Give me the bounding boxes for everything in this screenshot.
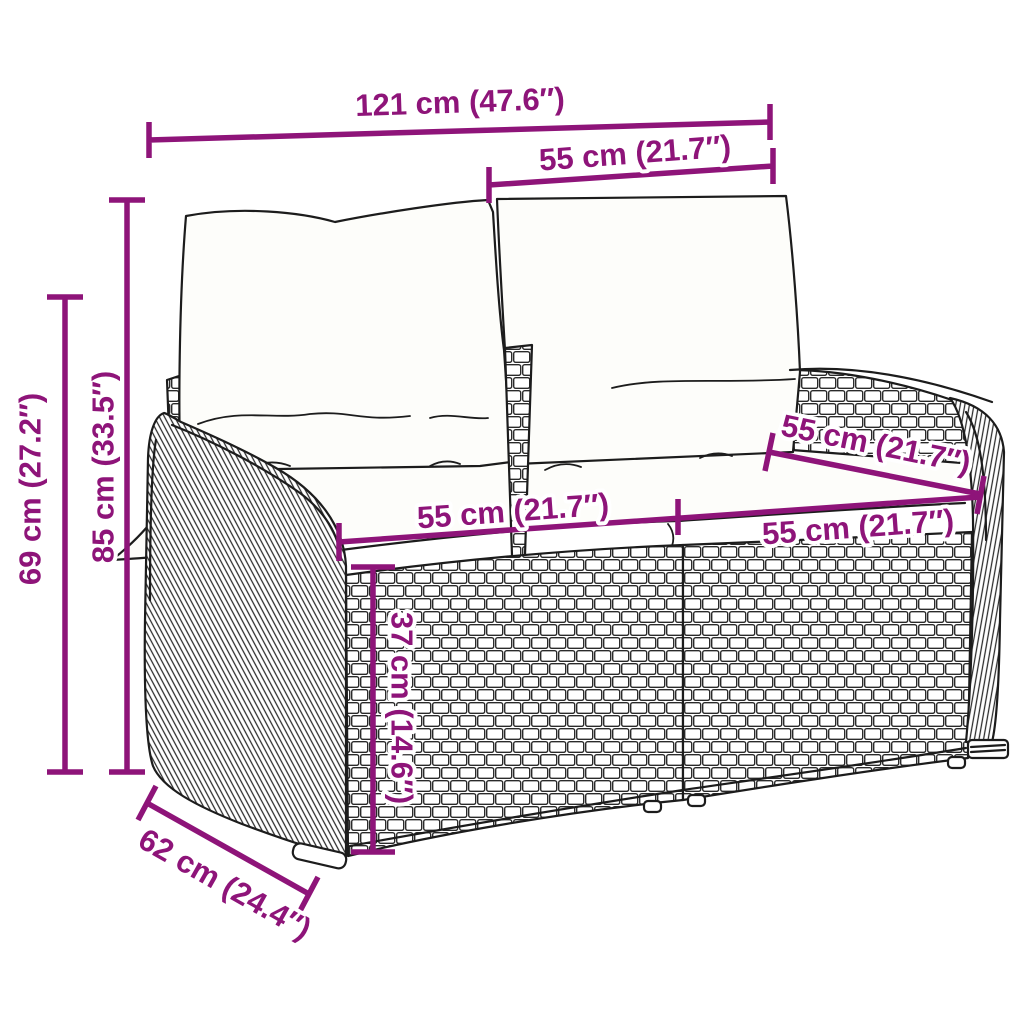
dim-total-height-label: 85 cm (33.5″) (86, 371, 121, 563)
dim-total-height: 85 cm (33.5″) (86, 200, 146, 772)
dim-side-height: 69 cm (27.2″) (13, 297, 84, 772)
dim-side-height-line (47, 297, 83, 772)
dim-section-width: 55 cm (21.7″) (489, 128, 773, 203)
back-cushion-right (497, 196, 800, 464)
front-panel-right (683, 532, 972, 800)
back-cushion-left (179, 200, 511, 470)
dim-side-height-label: 69 cm (27.2″) (13, 393, 48, 585)
dim-seat-height-label: 37 cm (14.6″) (385, 612, 420, 804)
dim-overall-width-label: 121 cm (47.6″) (355, 81, 566, 123)
furniture-dimension-diagram: 121 cm (47.6″) 55 cm (21.7″) 85 cm (33.5… (0, 0, 1024, 1024)
